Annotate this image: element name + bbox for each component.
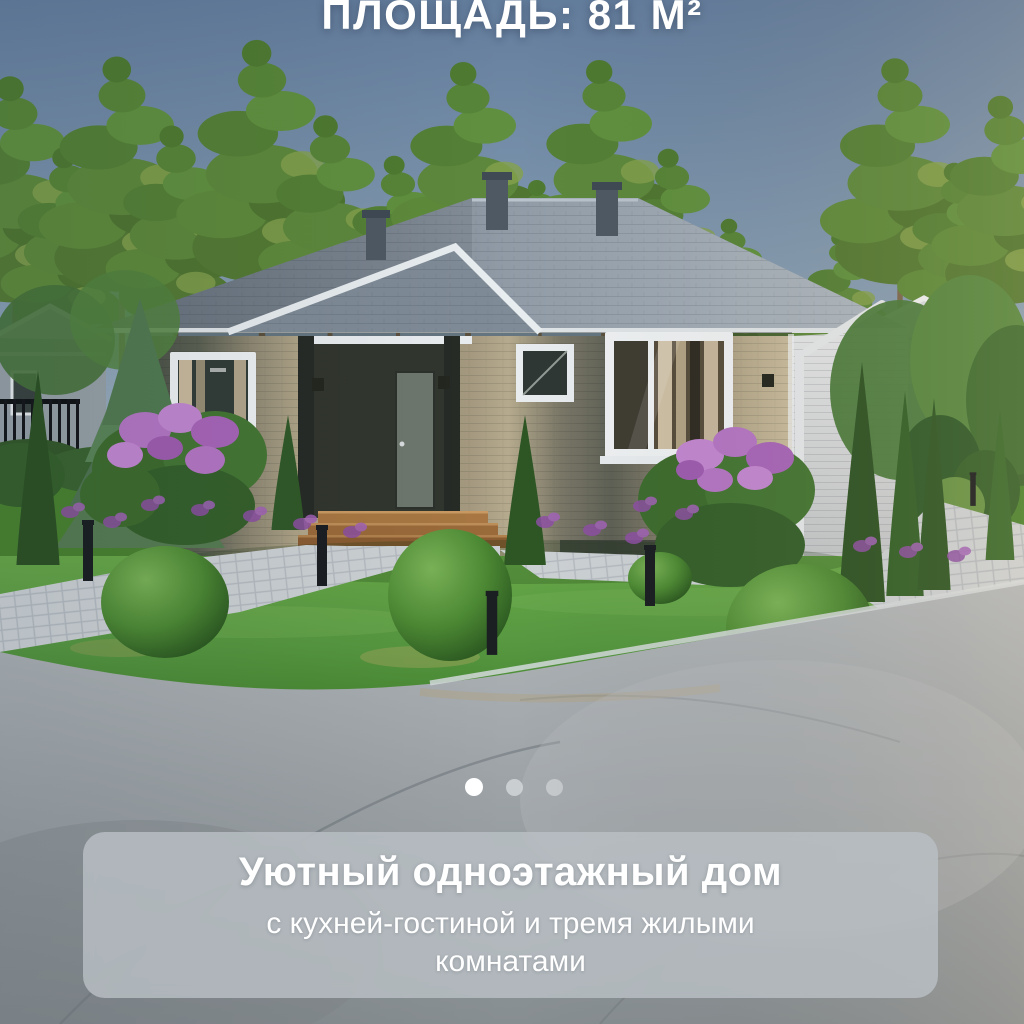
caption-subtitle: с кухней-гостиной и тремя жилыми комната…: [191, 905, 831, 980]
caption-title: Уютный одноэтажный дом: [239, 850, 782, 895]
carousel-dot-2[interactable]: [506, 779, 523, 796]
carousel-dot-1[interactable]: [465, 778, 483, 796]
area-title: ПЛОЩАДЬ: 81 М²: [0, 0, 1024, 39]
caption-card: Уютный одноэтажный дом с кухней-гостиной…: [83, 832, 938, 998]
carousel-dot-3[interactable]: [546, 779, 563, 796]
carousel-dots: [465, 778, 563, 796]
